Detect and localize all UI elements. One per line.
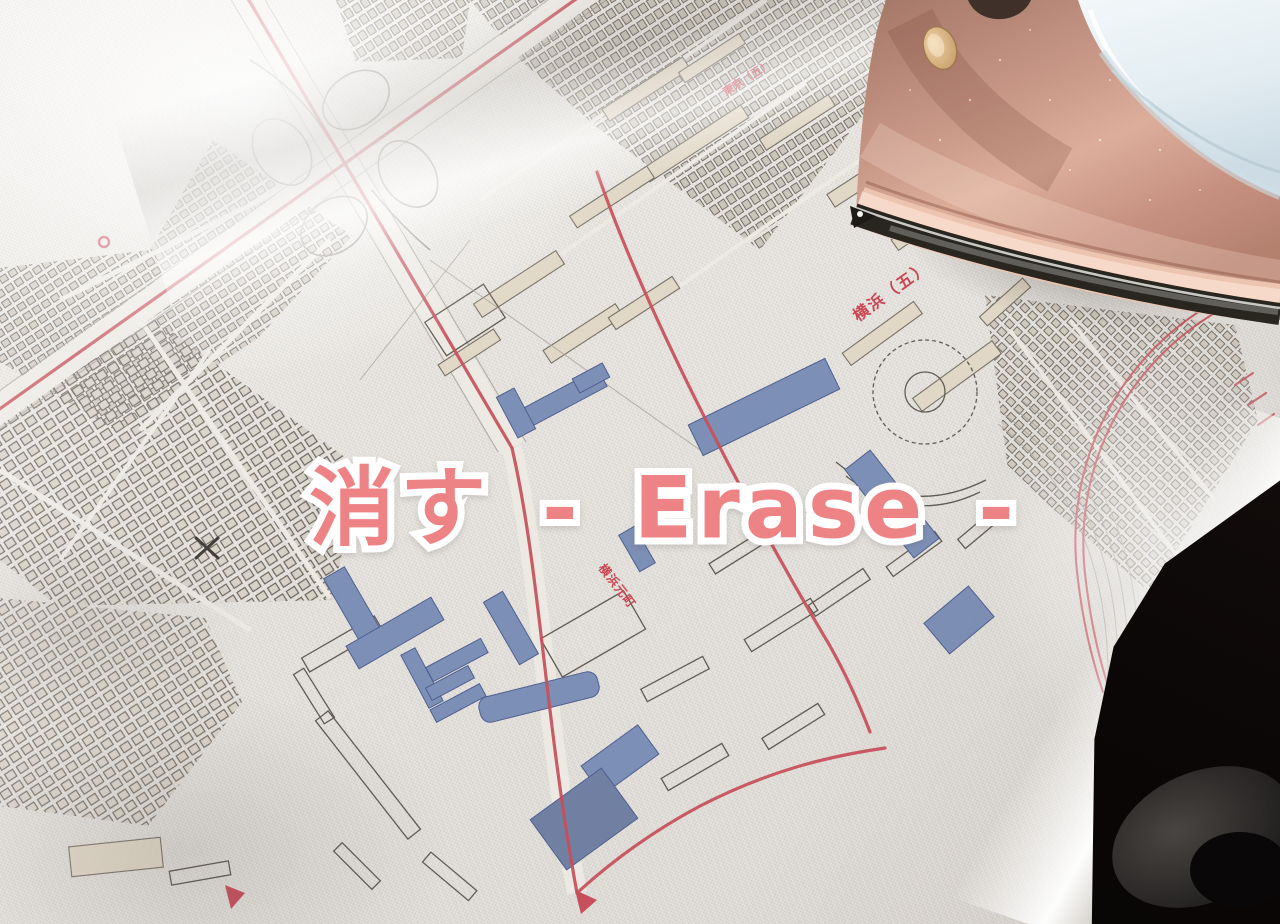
highlight-top-left xyxy=(0,0,640,380)
buildings-outline xyxy=(169,284,1008,900)
background-object-hole xyxy=(1190,832,1280,908)
photo-scene: 東京（五） 横浜（五） 横浜元町 xyxy=(0,0,1280,924)
soleplate-tip-highlight xyxy=(857,211,863,217)
map-label-3: 横浜元町 xyxy=(596,561,640,611)
buildings-blue xyxy=(324,358,994,870)
shadow-mid-left xyxy=(0,520,250,740)
shadow-bottom-left xyxy=(0,690,450,924)
cloverleaf-interchange xyxy=(240,58,450,268)
map-label-1: 東京（五） xyxy=(720,57,774,99)
school-mark xyxy=(196,538,218,558)
caption-overlay: 消す - Erase - 消す - Erase - xyxy=(309,438,1019,563)
caption-text: 消す - Erase - xyxy=(309,438,1019,563)
iron xyxy=(850,0,1280,330)
